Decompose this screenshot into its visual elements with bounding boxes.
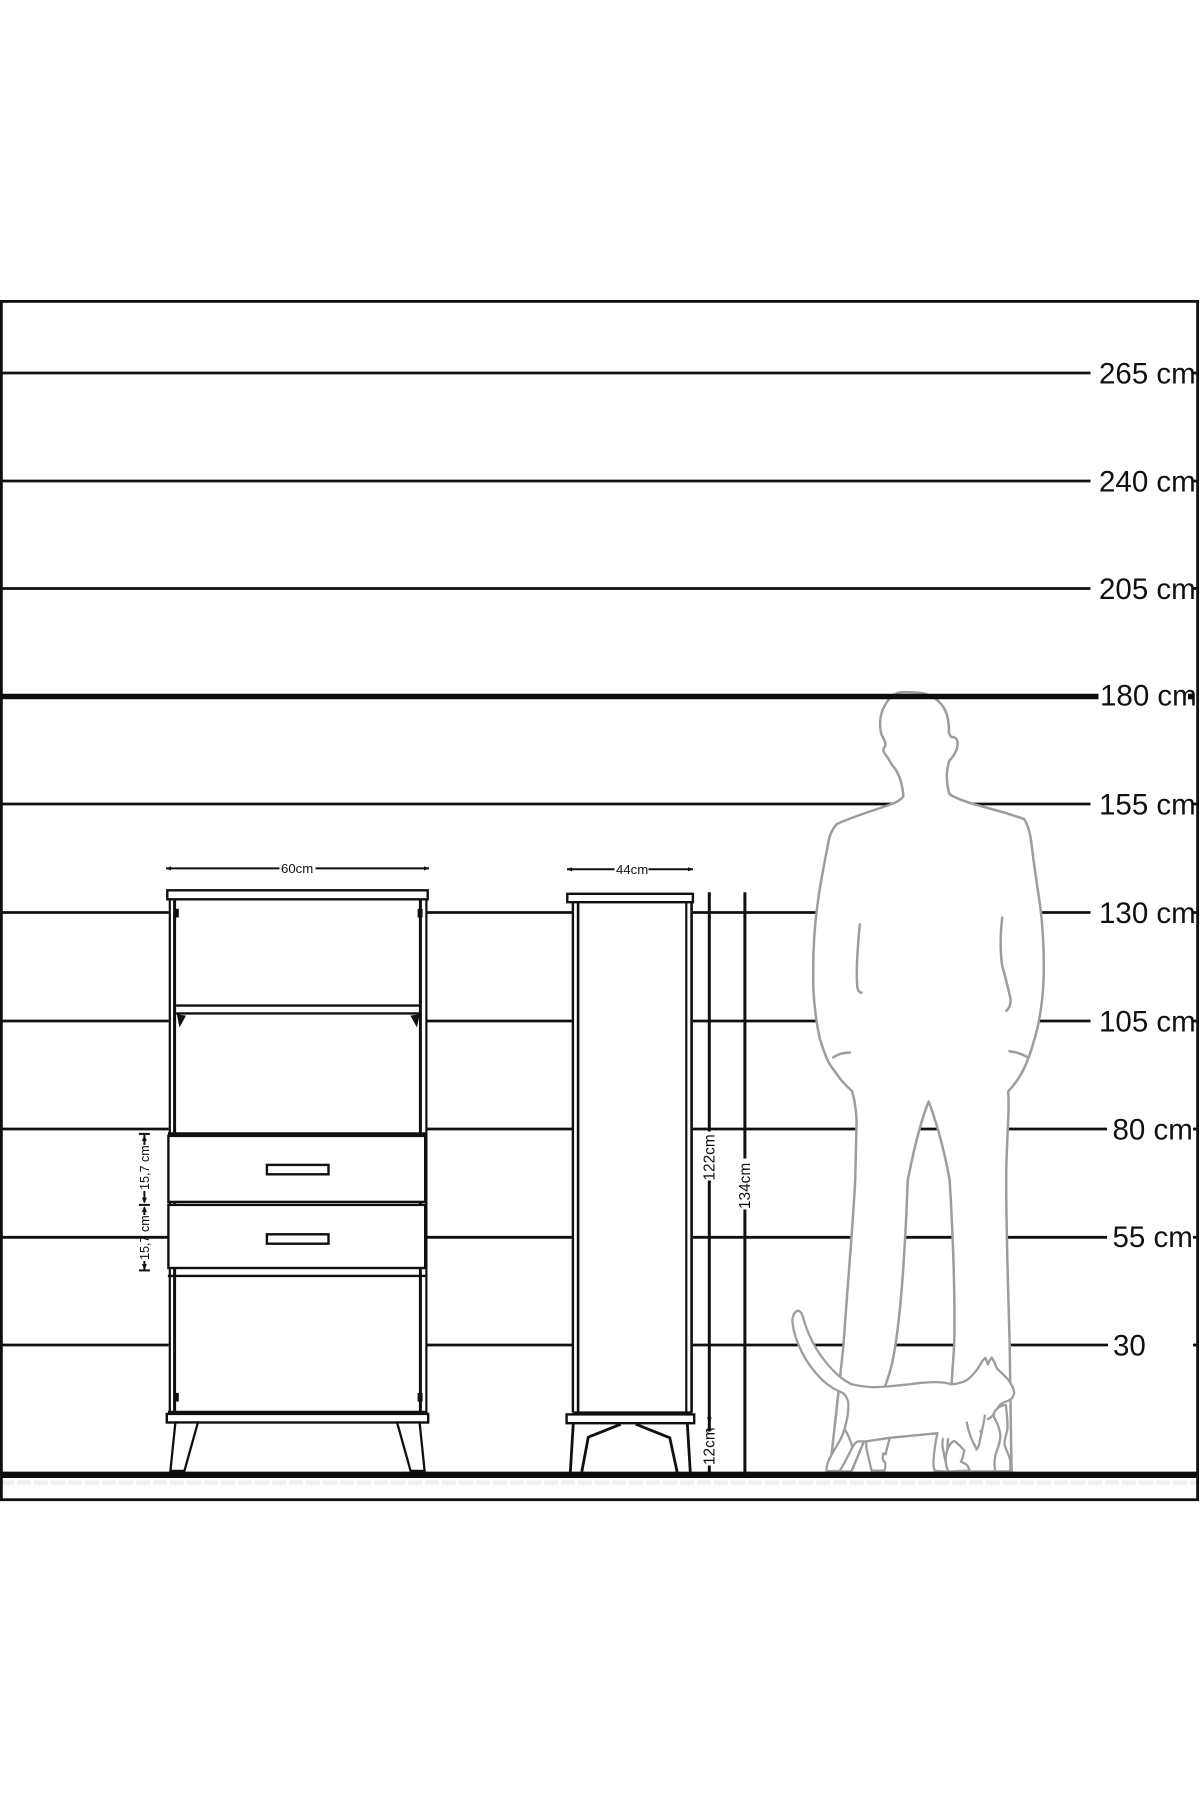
svg-text:134cm: 134cm [737,1163,754,1209]
svg-text:15,7 cm: 15,7 cm [138,1145,152,1190]
svg-text:155 cm: 155 cm [1099,789,1196,822]
svg-text:30: 30 [1113,1330,1146,1363]
svg-text:55 cm: 55 cm [1113,1221,1193,1254]
svg-text:44cm: 44cm [616,862,648,877]
svg-text:205 cm: 205 cm [1099,573,1196,606]
svg-text:60cm: 60cm [281,861,313,876]
svg-text:15,7 cm: 15,7 cm [138,1215,152,1260]
svg-text:180 cm: 180 cm [1100,680,1197,713]
svg-text:12cm: 12cm [702,1427,719,1465]
svg-text:265 cm: 265 cm [1099,358,1196,391]
svg-text:130 cm: 130 cm [1099,897,1196,930]
svg-text:122cm: 122cm [702,1134,719,1180]
svg-text:105 cm: 105 cm [1099,1006,1196,1039]
svg-text:80 cm: 80 cm [1113,1114,1193,1147]
svg-text:240 cm: 240 cm [1099,466,1196,499]
